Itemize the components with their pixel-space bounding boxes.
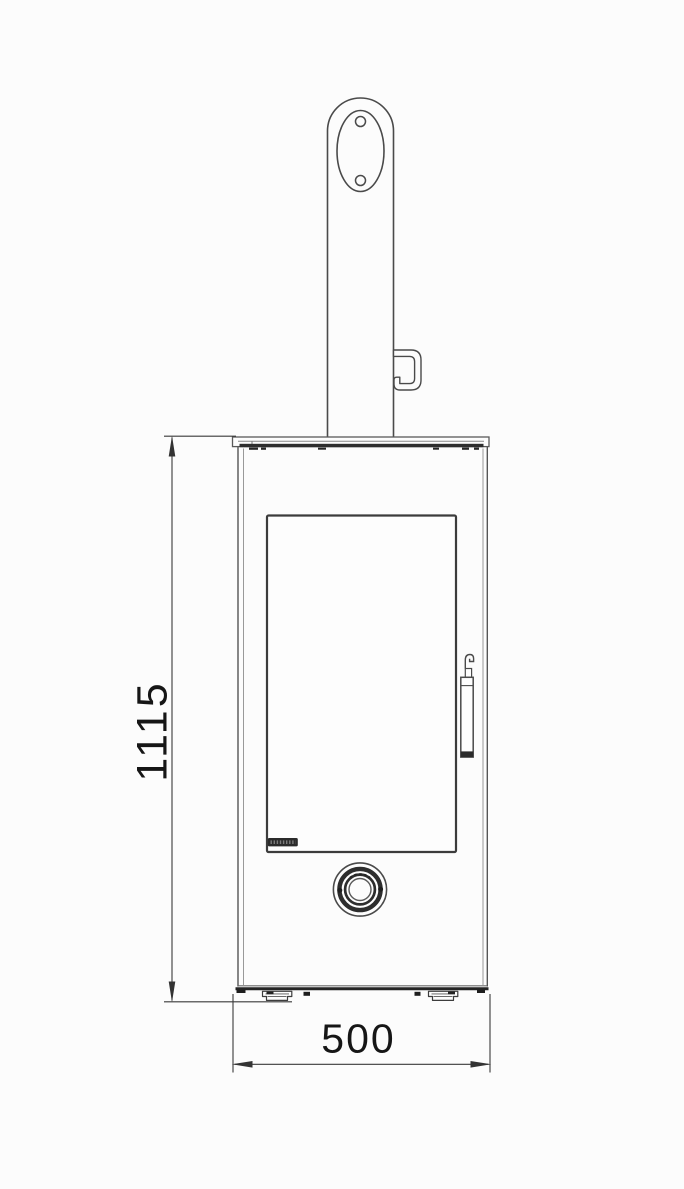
top-plate-ticks [249,448,479,450]
foot-left [263,991,292,1000]
door-handle [461,655,474,758]
width-dimension-label: 500 [321,1016,395,1062]
handle-end-cap [461,751,473,757]
width-arrow-left [232,1061,253,1068]
base-clip-left [304,992,311,996]
foot-left-bolt [267,992,274,995]
brand-logo [268,838,298,846]
foot-right [429,991,458,1000]
width-dimension: 500 [232,994,491,1073]
height-arrow-top [169,436,176,457]
handle-collar [465,669,471,678]
height-dimension-label: 1115 [129,680,177,781]
stove-technical-drawing: 1115 500 [0,0,684,1189]
knob-center [349,879,371,901]
height-arrow-bottom [169,982,176,1003]
handle-bar [461,677,473,757]
door-window [267,516,456,853]
base-clip-right [415,992,421,996]
technical-drawing-page: 1115 500 [0,0,684,1189]
foot-right-bolt [448,992,455,995]
base-corner-mark-right [477,990,485,993]
handle-latch-hook [465,655,473,669]
damper-bracket [394,350,422,390]
adjustable-feet [237,990,486,1001]
base-corner-mark-left [237,990,246,993]
damper-bracket-outline [394,350,422,390]
flue-pipe [328,98,394,442]
top-plate [233,437,490,450]
knob-stop-dot-right [378,887,383,892]
width-arrow-right [471,1061,492,1068]
top-plate-shadow-band [240,444,484,447]
knob-stop-dot-left [337,888,342,893]
control-knob [333,863,386,916]
